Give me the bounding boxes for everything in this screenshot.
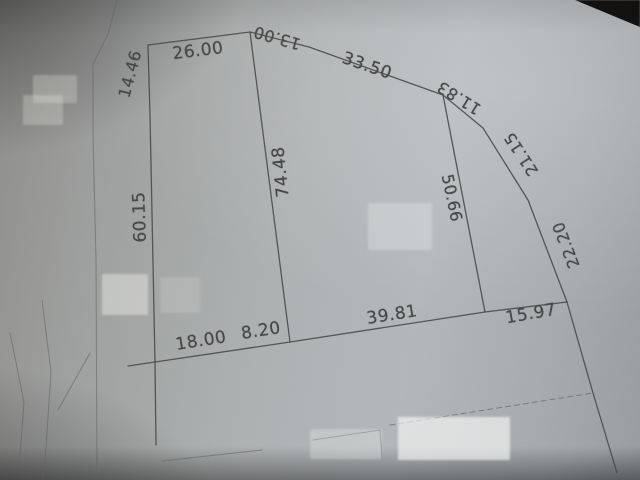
blur-patch-midleft-b (160, 277, 200, 313)
blur-patch-midleft-a (102, 274, 148, 315)
dimension-label: 60.15 (129, 191, 151, 243)
curve-line-a (42, 300, 51, 480)
blur-patch-center (368, 203, 432, 250)
road-line-left (93, 0, 117, 477)
blur-patch-bottom-a (310, 429, 382, 459)
right-boundary-extension (567, 302, 617, 473)
blur-patch-topleft-b (23, 95, 63, 125)
survey-drawing: 26.0013.0033.5011.8321.1522.2014.4660.15… (0, 0, 640, 480)
survey-photo: 26.0013.0033.5011.8321.1522.2014.4660.15… (0, 0, 640, 480)
lot-line-a (162, 450, 262, 461)
blur-patch-bottom-b (398, 417, 510, 460)
survey-lines (0, 0, 640, 480)
edge-left (148, 45, 156, 445)
branch-line (58, 353, 90, 410)
curve-line-b (10, 333, 24, 468)
